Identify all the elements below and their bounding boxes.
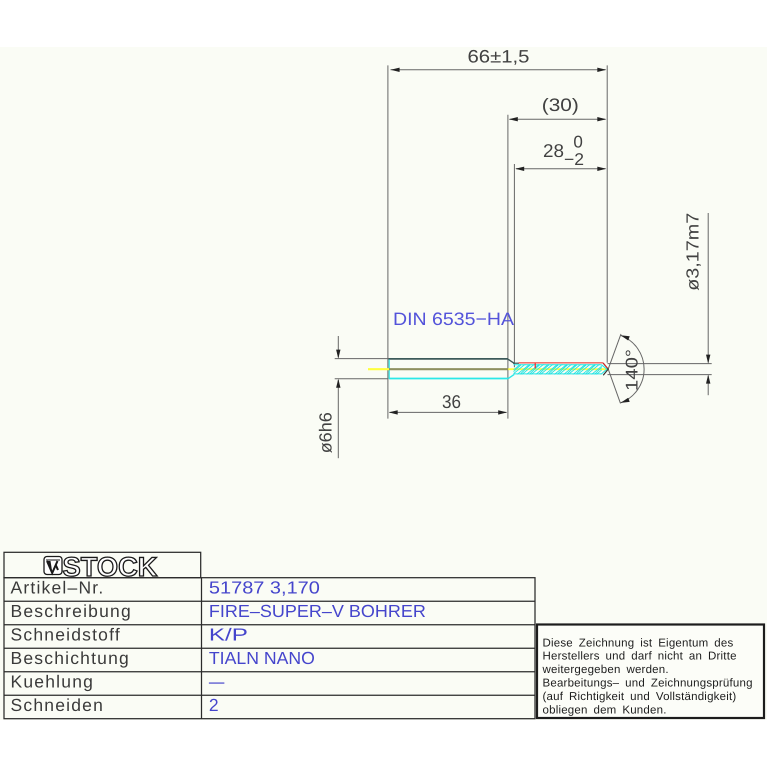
svg-text:51787 3,170: 51787 3,170 [209,578,320,598]
svg-text:ø6h6: ø6h6 [316,412,336,453]
svg-text:−2: −2 [564,150,584,169]
svg-text:Diese Zeichnung ist Eigentum d: Diese Zeichnung ist Eigentum des [543,637,734,649]
svg-text:DIN 6535−HA: DIN 6535−HA [393,309,514,329]
svg-text:obliegen dem Kunden.: obliegen dem Kunden. [543,704,667,716]
svg-text:Bearbeitungs– und Zeichnungspr: Bearbeitungs– und Zeichnungsprüfung [543,678,753,690]
svg-text:(auf Richtigkeit und Vollständ: (auf Richtigkeit und Vollständigkeit) [543,691,737,703]
svg-text:weitergegeben werden.: weitergegeben werden. [542,664,669,676]
svg-text:Kuehlung: Kuehlung [11,672,95,692]
svg-text:Schneidstoff: Schneidstoff [11,625,121,645]
svg-text:TIALN NANO: TIALN NANO [209,648,315,668]
svg-text:0: 0 [573,132,582,151]
svg-text:36: 36 [442,391,461,412]
svg-text:K/P: K/P [209,625,248,645]
svg-text:–: – [209,672,225,692]
svg-text:Artikel–Nr.: Artikel–Nr. [11,578,105,598]
svg-text:28: 28 [543,140,564,161]
svg-text:2: 2 [209,695,219,715]
svg-text:(30): (30) [542,95,579,115]
svg-text:ø3,17m7: ø3,17m7 [683,213,703,291]
svg-text:140°: 140° [623,349,642,391]
svg-text:Schneiden: Schneiden [11,695,105,715]
svg-text:Herstellers und darf nicht an: Herstellers und darf nicht an Dritte [543,651,737,663]
svg-text:FIRE–SUPER–V BOHRER: FIRE–SUPER–V BOHRER [209,601,426,621]
svg-text:Beschichtung: Beschichtung [11,648,130,668]
svg-text:66±1,5: 66±1,5 [468,47,530,67]
svg-text:Beschreibung: Beschreibung [11,601,132,621]
